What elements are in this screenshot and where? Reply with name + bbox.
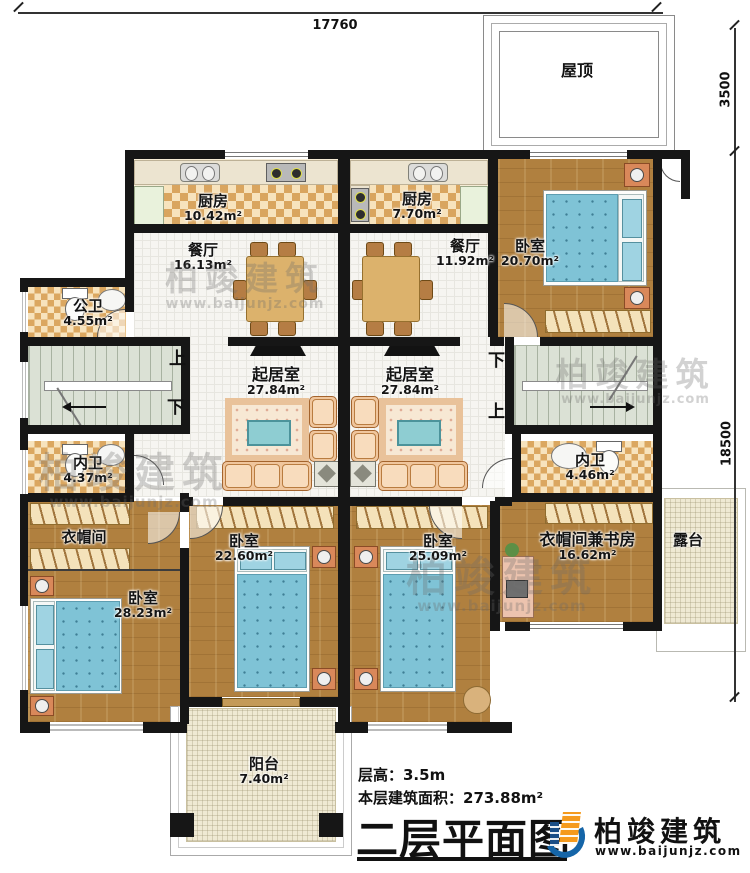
wall — [20, 425, 187, 434]
sofa-icon — [378, 461, 468, 491]
wall — [505, 622, 530, 631]
wall — [350, 224, 488, 233]
wall — [505, 425, 662, 434]
dining-table-icon — [362, 256, 420, 322]
chair-icon — [366, 242, 384, 257]
room-label-roof: 屋顶 — [547, 62, 607, 79]
wall — [180, 697, 222, 707]
nightstand-icon — [312, 546, 336, 568]
flue-arc — [660, 162, 680, 182]
tv-icon — [250, 346, 306, 356]
room-label-living-right: 起居室 27.84m² — [368, 366, 452, 397]
window — [20, 450, 28, 494]
room-label-bedroom-2260: 卧室 22.60m² — [206, 533, 282, 563]
wall — [540, 337, 662, 346]
chair-icon — [419, 280, 433, 300]
room-label-public-bath: 公卫 4.55m² — [58, 298, 118, 328]
roof-outline-inner — [499, 31, 659, 138]
bed-duvet — [383, 574, 453, 688]
wardrobe-icon — [356, 506, 488, 529]
stair-arrowhead — [626, 402, 635, 412]
dimension-line-right — [734, 28, 736, 702]
stove-icon — [351, 188, 369, 222]
wall — [125, 278, 134, 312]
chair-icon — [233, 280, 247, 300]
pillow-icon — [622, 199, 642, 238]
pillow-icon — [36, 649, 54, 689]
wardrobe-icon — [30, 548, 130, 570]
dimension-tick — [651, 2, 662, 13]
wall — [490, 337, 504, 346]
wall — [447, 722, 512, 733]
balcony-pillar — [170, 813, 194, 837]
nightstand-icon — [312, 668, 336, 690]
room-label-bedroom-2509: 卧室 25.09m² — [400, 533, 476, 563]
nightstand-icon — [354, 546, 378, 568]
room-label-living-left: 起居室 27.84m² — [234, 366, 318, 397]
chair-icon — [394, 242, 412, 257]
dimension-right-upper-value: 3500 — [719, 60, 734, 120]
coffee-table-icon — [247, 420, 291, 446]
dimension-right-lower-value: 18500 — [720, 409, 735, 479]
wardrobe-icon — [545, 503, 653, 524]
wall — [20, 493, 134, 502]
coffee-table-icon — [397, 420, 441, 446]
nightstand-icon — [624, 163, 650, 187]
wall — [20, 722, 50, 733]
company-logo-icon — [545, 806, 593, 862]
end-table-icon — [350, 461, 376, 487]
sliding-door — [222, 698, 300, 707]
wall-party — [338, 150, 350, 722]
wall — [512, 493, 653, 502]
wardrobe-icon — [30, 503, 130, 525]
stair-railing — [44, 381, 172, 391]
chair-icon — [303, 280, 317, 300]
chair-icon — [394, 321, 412, 336]
dimension-tick — [13, 2, 24, 13]
desk-monitor-icon — [506, 580, 528, 598]
floor-height-text: 层高：3.5m — [358, 764, 445, 785]
pillow-icon — [622, 242, 642, 281]
sofa-icon — [222, 461, 312, 491]
room-label-balcony: 阳台 7.40m² — [226, 756, 302, 786]
wardrobe-icon — [545, 310, 651, 333]
stair-arrowhead — [62, 402, 71, 412]
window — [20, 362, 28, 418]
wall — [125, 434, 134, 501]
fridge-icon — [134, 186, 164, 225]
dimension-line-top — [18, 12, 663, 14]
wall — [300, 697, 340, 707]
window — [225, 150, 308, 159]
armchair-icon — [351, 430, 379, 462]
ottoman-icon — [463, 686, 491, 714]
wall — [180, 493, 189, 512]
wall — [490, 501, 500, 631]
stair-arrow — [70, 406, 106, 408]
wall — [348, 150, 530, 159]
bed-duvet — [237, 574, 307, 688]
stair-arrow — [590, 406, 626, 408]
chair-icon — [278, 242, 296, 257]
room-label-study-right: 衣帽间兼书房 16.62m² — [510, 531, 665, 562]
window — [530, 150, 627, 159]
chair-icon — [250, 242, 268, 257]
company-url: www.baijunjz.com — [595, 844, 742, 858]
wall-tv-stub — [350, 337, 460, 346]
wall — [223, 497, 338, 506]
dining-table-icon — [246, 256, 304, 322]
wall — [20, 278, 134, 287]
kitchen-counter — [134, 160, 338, 185]
stairs-left-up-label: 上 — [169, 351, 186, 368]
room-label-kitchen-left: 厨房 10.42m² — [178, 193, 248, 223]
room-label-bedroom-2823: 卧室 28.23m² — [105, 590, 181, 620]
room-label-closet-left: 衣帽间 — [44, 529, 124, 545]
room-label-dining-right: 餐厅 11.92m² — [430, 238, 500, 268]
nightstand-icon — [624, 287, 650, 309]
room-label-kitchen-right: 厨房 7.70m² — [382, 191, 452, 221]
room-label-dining-left: 餐厅 16.13m² — [168, 242, 238, 272]
stove-icon — [266, 163, 306, 182]
stairs-right-up-label: 上 — [488, 404, 505, 421]
stair-railing — [522, 381, 648, 391]
fridge-icon — [460, 186, 488, 225]
nightstand-icon — [30, 696, 54, 716]
chair-icon — [250, 321, 268, 336]
armchair-icon — [309, 396, 337, 428]
floor-plan: 厨房 10.42m² 餐厅 16.13m² 公卫 4.55m² 内卫 4.37m… — [0, 0, 750, 873]
nightstand-icon — [354, 668, 378, 690]
wall — [335, 722, 368, 733]
wall — [143, 722, 187, 733]
pillow-icon — [36, 605, 54, 645]
window — [530, 622, 623, 631]
chair-icon — [278, 321, 296, 336]
kitchen-sink-icon — [180, 163, 220, 182]
stairs-left-down-label: 下 — [167, 400, 184, 417]
chair-icon — [366, 321, 384, 336]
armchair-icon — [309, 430, 337, 462]
tv-icon — [384, 346, 440, 356]
wall-tv-stub — [228, 337, 338, 346]
floor-terrace — [664, 498, 738, 624]
armchair-icon — [351, 396, 379, 428]
room-label-inner-bath-left: 内卫 4.37m² — [58, 455, 118, 485]
wall — [20, 337, 187, 346]
room-label-inner-bath-right: 内卫 4.46m² — [560, 452, 620, 482]
kitchen-sink-icon — [408, 163, 448, 182]
closet-bedroom-divider — [28, 569, 180, 571]
floor-area-text: 本层建筑面积：273.88m² — [358, 787, 543, 808]
end-table-icon — [314, 461, 340, 487]
wall — [350, 497, 462, 506]
stairs-right-down-label: 下 — [488, 353, 505, 370]
room-label-bedroom-2070: 卧室 20.70m² — [495, 238, 565, 268]
balcony-pillar — [319, 813, 343, 837]
window — [50, 722, 143, 733]
wall — [134, 224, 338, 233]
room-label-terrace: 露台 — [662, 532, 714, 548]
dimension-top-value: 17760 — [305, 18, 365, 33]
wall — [505, 337, 514, 434]
title-underline — [357, 857, 567, 861]
window — [20, 292, 28, 332]
wall — [623, 622, 662, 631]
wall — [681, 159, 690, 199]
window — [20, 606, 28, 690]
wall — [512, 434, 521, 501]
nightstand-icon — [30, 576, 54, 596]
wall — [125, 150, 225, 159]
window — [368, 722, 447, 733]
wall — [125, 150, 134, 278]
